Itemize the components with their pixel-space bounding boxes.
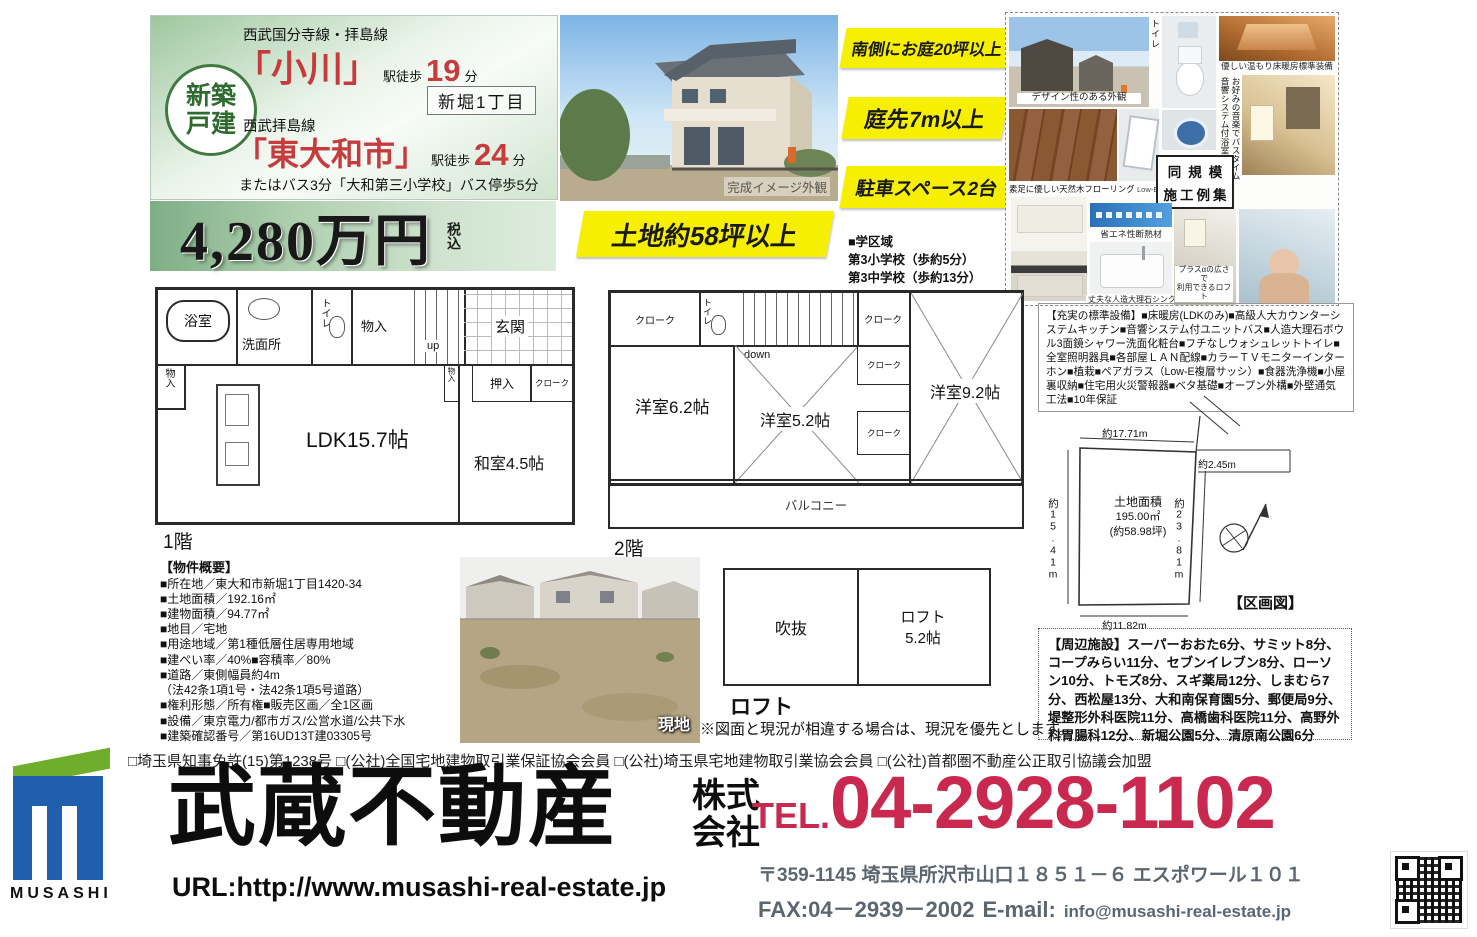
plot-diagram: 約17.71m 約15.41m 約23.81m 約11.82m 約2.45m 土… xyxy=(1038,388,1348,638)
floorplan-loft: 吹抜 ロフト 5.2帖 xyxy=(723,568,991,686)
storage-top-label: 物入 xyxy=(361,316,387,335)
surroundings-text: 【周辺施設】スーパーおおた6分、サミット8分、コープみらい11分、セブンイレブン… xyxy=(1048,637,1341,743)
oshiire-closet: 押入 xyxy=(472,364,532,402)
room52-label: 洋室5.2帖 xyxy=(757,407,833,431)
exterior-house-shape xyxy=(1021,39,1073,91)
room-storage-left: 物入 xyxy=(158,364,186,410)
room-bath: 浴室 xyxy=(158,290,238,366)
musashi-logo: MUSASHI xyxy=(10,745,130,915)
logo-m-slot-2 xyxy=(62,806,77,880)
tel-label: TEL. xyxy=(752,795,830,837)
loft-window-shape xyxy=(1184,219,1206,247)
stairs-2f xyxy=(733,293,859,347)
balcony-label: バルコニー xyxy=(785,495,847,514)
loft-room: ロフト 5.2帖 xyxy=(857,570,989,684)
min-unit-1: 分 xyxy=(465,66,478,85)
outline-line: ■設備／東京電力/都市ガス/公営水道/公共下水 xyxy=(160,714,460,729)
flooring-caption-row: 素足に優しい天然木フローリング Low-E複層サッシ xyxy=(1009,183,1169,195)
email-label: E-mail: xyxy=(982,897,1055,923)
sash-photo xyxy=(1119,109,1159,181)
logo-text: MUSASHI xyxy=(10,885,106,903)
bathroom-photo xyxy=(1239,209,1335,303)
washitsu-label: 和室4.5帖 xyxy=(474,450,544,474)
site-photo-label: 現地 xyxy=(658,711,690,735)
bath-label: 浴室 xyxy=(184,311,212,331)
station-2: 「東大和市」 xyxy=(235,129,427,175)
exterior-house-shape-2 xyxy=(1079,55,1113,91)
highlight-badge-3: 駐車スペース2台 xyxy=(839,166,1014,208)
company-url: URL:http://www.musashi-real-estate.jp xyxy=(172,872,666,903)
school-item-1: 第3小学校（歩約5分） xyxy=(848,251,981,269)
company-type-2: 会社 xyxy=(692,815,760,852)
outline-title: 【物件概要】 xyxy=(160,560,460,577)
closet-2f-tr: クローク xyxy=(857,293,911,347)
floorplan-1f: 浴室 洗面所 トイレ 物入 up 玄関 物入 LDK15.7帖 xyxy=(155,287,575,525)
storage-left-label: 物入 xyxy=(161,368,176,388)
walk-min-2: 24 xyxy=(474,137,508,173)
bathtub-shape: 浴室 xyxy=(166,300,230,342)
price-band: 4,280万円 税込 xyxy=(150,201,556,271)
outline-line: ■道路／東側幅員約4m xyxy=(160,668,460,683)
exterior-photo: デザイン性のある外観 xyxy=(1009,17,1149,107)
toilet-tank-shape xyxy=(1178,46,1202,64)
closet-2f-mid1: クローク xyxy=(857,345,911,385)
oshiire-label: 押入 xyxy=(490,375,514,392)
price-amount: 4,280万円 xyxy=(180,196,432,277)
stairs-up-label: up xyxy=(424,340,442,352)
bus-note: またはバス3分「大和第三小学校」バス停歩5分 xyxy=(239,175,539,195)
toilet-window-shape xyxy=(1178,22,1198,38)
surroundings-box: 【周辺施設】スーパーおおた6分、サミット8分、コープみらい11分、セブンイレブン… xyxy=(1038,628,1352,740)
loft-room-photo: プラスαの広さで 利用できるロフト xyxy=(1174,209,1236,305)
tel-number: 04-2928-1102 xyxy=(830,766,1275,840)
outline-line: ■建ぺい率／40%■容積率／80% xyxy=(160,653,460,668)
main-photo: 完成イメージ外観 xyxy=(560,15,838,201)
walk-label-2: 駅徒歩 xyxy=(431,150,470,169)
highlight-badge-1: 南側にお庭20坪以上 xyxy=(839,28,1014,68)
entrance-label: 玄関 xyxy=(492,316,528,337)
company-type-1: 株式 xyxy=(692,778,760,815)
glass-pane-shape xyxy=(1123,115,1160,171)
plot-len-top: 約17.71m xyxy=(1102,426,1148,441)
loft-room-label-1: ロフト xyxy=(900,606,945,627)
bedroom-photo xyxy=(1242,75,1335,175)
toilet-bowl-shape xyxy=(1176,62,1204,96)
room-52: 洋室5.2帖 xyxy=(733,345,859,483)
faucet-shape xyxy=(1142,246,1145,260)
outline-line: （法42条1項1号・法42条1項5号道路） xyxy=(160,683,460,698)
insulation-banner xyxy=(1090,203,1172,227)
new-build-line1: 新築 xyxy=(186,82,236,110)
area-tag: 新堀1丁目 xyxy=(427,86,536,115)
toilet-photo xyxy=(1162,16,1216,108)
email-address: info@musashi-real-estate.jp xyxy=(1064,902,1291,922)
room62-label: 洋室6.2帖 xyxy=(635,393,710,418)
example-line-1: 同規模 xyxy=(1168,161,1230,181)
wash-label: 洗面所 xyxy=(242,334,281,353)
tel-block: TEL. 04-2928-1102 xyxy=(752,766,1275,840)
wash-bowl-shape xyxy=(248,298,280,320)
flooring-caption: 素足に優しい天然木フローリング xyxy=(1009,184,1135,194)
bedroom-window-shape xyxy=(1250,105,1274,141)
room-92: 洋室9.2帖 xyxy=(909,293,1023,483)
land-size-badge: 土地約58坪以上 xyxy=(576,211,834,257)
property-outline: 【物件概要】 ■所在地／東大和市新堀1丁目1420-34 ■土地面積／192.1… xyxy=(160,560,460,744)
outline-line: ■建物面積／94.77㎡ xyxy=(160,607,460,622)
flooring-photo xyxy=(1009,109,1117,181)
floor-heating-photo xyxy=(1219,16,1335,61)
exterior-caption: デザイン性のある外観 xyxy=(1017,93,1141,104)
balcony-2f: バルコニー xyxy=(608,479,1024,529)
loft-void: 吹抜 xyxy=(725,570,859,684)
outline-line: ■建築確認番号／第16UD13T建03305号 xyxy=(160,729,460,744)
stairs-1f: up xyxy=(404,290,466,366)
ldk-label: LDK15.7帖 xyxy=(306,424,409,454)
access-box: 新築 戸建 西武国分寺線・拝島線 「小川」 駅徒歩 19 分 新堀1丁目 西武拝… xyxy=(150,15,558,200)
fax-number: FAX:04－2939－2002 xyxy=(758,892,974,924)
company-address: 〒359-1145 埼玉県所沢市山口１８５１－６ エスポワール１０１ xyxy=(758,860,1304,887)
closet-2f-mid2: クローク xyxy=(857,411,911,455)
flyer-page: 新築 戸建 西武国分寺線・拝島線 「小川」 駅徒歩 19 分 新堀1丁目 西武拝… xyxy=(0,0,1477,937)
qr-finder-tr xyxy=(1438,856,1463,881)
closet-1f: クローク xyxy=(530,364,574,402)
toilet-1f-shape xyxy=(329,316,345,338)
lavatory-photo xyxy=(1162,110,1216,150)
outline-line: ■地目／宅地 xyxy=(160,622,460,637)
highlight-badge-2: 庭先7m以上 xyxy=(841,97,1008,139)
floorplan-2f: クローク トイレ down クローク 洋室6.2帖 洋室5.2帖 クローク クロ… xyxy=(608,290,1024,486)
qr-code xyxy=(1390,851,1468,929)
plot-title: 【区画図】 xyxy=(1228,592,1303,613)
loft-void-label: 吹抜 xyxy=(775,615,807,639)
kitchen-counter-plan xyxy=(216,384,260,486)
example-line-2: 施工例集 xyxy=(1164,184,1230,204)
plot-area-m2: 195.00㎡ xyxy=(1090,510,1186,525)
kitchen-sink-plan xyxy=(225,394,249,426)
logo-m-block xyxy=(13,776,103,880)
plot-area-tsubo: (約58.98坪) xyxy=(1090,525,1186,540)
plot-len-notch: 約2.45m xyxy=(1198,456,1236,471)
kitchen-cabinet-shape xyxy=(1017,205,1083,233)
room92-label: 洋室9.2帖 xyxy=(927,379,1003,403)
room-toilet-2f: トイレ xyxy=(699,293,735,347)
kitchen-stove-plan xyxy=(225,442,249,466)
insulation-caption: 省エネ性断熱材 xyxy=(1090,229,1172,239)
heating-panel-shape xyxy=(1237,24,1317,50)
storage-mini-1f: 物入 xyxy=(444,364,460,402)
kitchen-photo xyxy=(1011,197,1087,301)
school-title: ■学区域 xyxy=(848,233,981,251)
loft-photo-caption: プラスαの広さで 利用できるロフト xyxy=(1175,266,1233,302)
qr-finder-tl xyxy=(1395,856,1420,881)
loft-photo-caption-2: 利用できるロフト xyxy=(1175,284,1233,302)
toilet-2f-shape xyxy=(711,315,726,335)
outline-line: ■所在地／東大和市新堀1丁目1420-34 xyxy=(160,577,460,592)
station-1: 「小川」 xyxy=(235,40,379,92)
walk-label-1: 駅徒歩 xyxy=(383,66,422,85)
closet-2f-mid1-label: クローク xyxy=(867,359,901,371)
room-toilet-1f: トイレ xyxy=(311,290,353,366)
bather-shoulders-shape xyxy=(1259,273,1309,303)
insulation-banner-text-lines xyxy=(1096,212,1166,218)
floor1-label: 1階 xyxy=(163,527,193,554)
storage-mini-label: 物入 xyxy=(446,367,457,382)
room-storage-top: 物入 xyxy=(349,290,406,366)
company-type: 株式 会社 xyxy=(692,778,760,851)
same-scale-example-badge: 同規模 施工例集 xyxy=(1156,155,1234,209)
price-tax-note: 税込 xyxy=(444,222,464,250)
school-item-2: 第3中学校（歩約13分） xyxy=(848,269,981,287)
closet-2f-tr-label: クローク xyxy=(864,312,902,326)
closet-2f-mid2-label: クローク xyxy=(867,427,901,439)
plot-area-title: 土地面積 xyxy=(1090,494,1186,510)
min-unit-2: 分 xyxy=(513,150,526,169)
outline-line: ■土地面積／192.16㎡ xyxy=(160,592,460,607)
new-build-line2: 戸建 xyxy=(186,110,236,138)
fax-email-line: FAX:04－2939－2002 E-mail: info@musashi-re… xyxy=(758,892,1291,924)
closet-2f-tl: クローク xyxy=(611,293,701,347)
plot-area-block: 土地面積 195.00㎡ (約58.98坪) xyxy=(1090,494,1186,540)
house-render-graphic xyxy=(560,15,838,201)
entrance-1f: 玄関 xyxy=(464,290,572,366)
closet-1f-label: クローク xyxy=(535,377,569,389)
room-wash: 洗面所 xyxy=(236,290,311,366)
qr-finder-bl xyxy=(1395,899,1420,924)
room-washitsu: 押入 クローク 和室4.5帖 xyxy=(458,364,574,522)
school-district: ■学区域 第3小学校（歩約5分） 第3中学校（歩約13分） xyxy=(848,233,981,287)
outline-line: ■権利形態／所有権■販売区画／全1区画 xyxy=(160,698,460,713)
kitchen-counter-shape xyxy=(1017,275,1083,297)
logo-m-slot-1 xyxy=(32,806,47,880)
loft-note: ※図面と現況が相違する場合は、現況を優先とします。 xyxy=(700,718,1074,739)
walk-min-1: 19 xyxy=(426,53,460,89)
photo-collage: デザイン性のある外観 お手入れ簡単節水トイレ 優しい温もり床暖房標準装備 音響シ… xyxy=(1005,12,1339,306)
loft-photo-caption-1: プラスαの広さで xyxy=(1175,266,1233,284)
outline-line: ■用途地域／第1種低層住居専用地域 xyxy=(160,637,460,652)
bedroom-closet-shape xyxy=(1286,87,1320,129)
closet-2f-tl-label: クローク xyxy=(635,312,675,327)
loft-room-label-2: 5.2帖 xyxy=(905,627,941,648)
site-photo: 現地 xyxy=(460,557,700,743)
loft-label: ロフト xyxy=(730,691,793,721)
plot-len-left: 約15.41m xyxy=(1046,498,1061,581)
sink-photo xyxy=(1090,242,1172,294)
lavatory-bowl-shape xyxy=(1174,118,1208,148)
heating-caption: 優しい温もり床暖房標準装備 xyxy=(1219,62,1335,72)
sink-basin-shape xyxy=(1100,254,1164,288)
main-photo-caption: 完成イメージ外観 xyxy=(724,177,830,196)
company-name: 武蔵不動産 xyxy=(168,763,618,851)
